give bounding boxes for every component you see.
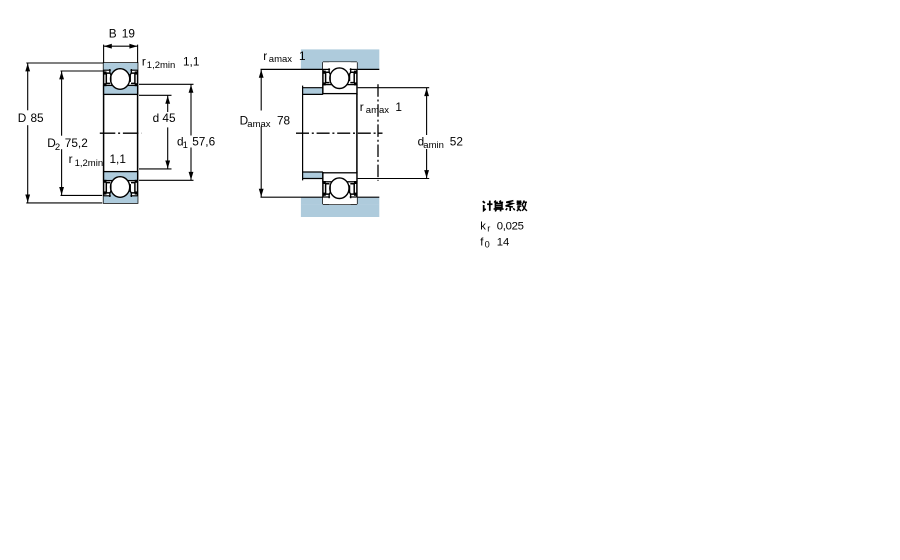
svg-text:14: 14 xyxy=(497,236,510,248)
svg-text:r: r xyxy=(487,224,490,234)
svg-text:1,1: 1,1 xyxy=(183,54,199,68)
svg-text:1,2min: 1,2min xyxy=(147,60,176,71)
svg-text:1,2min: 1,2min xyxy=(75,158,104,169)
svg-text:k: k xyxy=(480,220,486,232)
svg-text:r: r xyxy=(142,54,146,68)
svg-text:1: 1 xyxy=(395,100,402,114)
svg-text:B: B xyxy=(109,27,117,41)
svg-text:19: 19 xyxy=(122,27,135,41)
svg-text:57,6: 57,6 xyxy=(192,135,215,149)
svg-text:75,2: 75,2 xyxy=(65,136,88,150)
svg-text:amax: amax xyxy=(247,119,270,130)
svg-text:r: r xyxy=(360,100,364,114)
svg-text:amax: amax xyxy=(366,105,389,116)
svg-text:78: 78 xyxy=(277,114,291,128)
svg-text:2: 2 xyxy=(55,142,60,153)
svg-text:85: 85 xyxy=(31,111,45,125)
svg-text:amax: amax xyxy=(269,54,292,65)
svg-text:0,025: 0,025 xyxy=(497,220,524,232)
svg-text:amin: amin xyxy=(423,140,444,151)
svg-text:d: d xyxy=(153,111,160,125)
svg-text:45: 45 xyxy=(162,111,176,125)
svg-text:r: r xyxy=(69,152,73,166)
svg-text:0: 0 xyxy=(485,240,490,250)
svg-text:r: r xyxy=(263,49,267,63)
svg-text:1: 1 xyxy=(299,49,306,63)
svg-text:D: D xyxy=(18,111,27,125)
svg-text:52: 52 xyxy=(450,135,463,149)
svg-text:1: 1 xyxy=(183,140,188,151)
svg-text:1,1: 1,1 xyxy=(110,152,126,166)
